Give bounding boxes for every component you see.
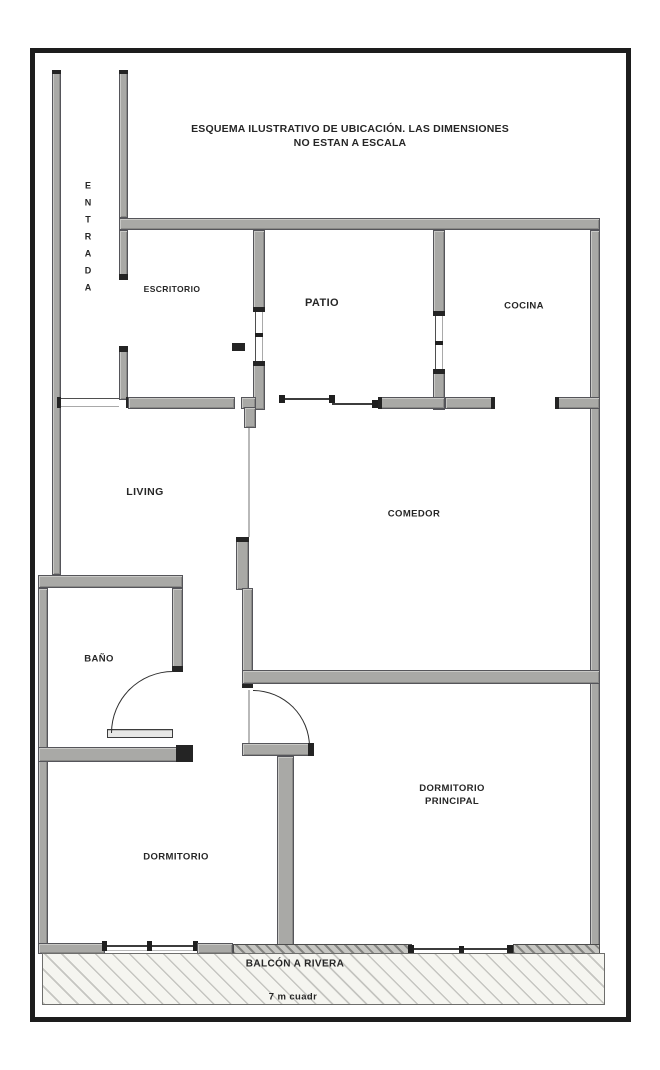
- sliding-door-stop: [279, 395, 285, 403]
- window-cap: [102, 941, 107, 951]
- wall-stub: [232, 343, 245, 351]
- opening-cap: [57, 397, 61, 408]
- wall-corner-block: [176, 745, 193, 762]
- door-leaf: [248, 690, 250, 743]
- wall-cap: [308, 743, 314, 756]
- room-label-entrada: ENTRADA: [83, 181, 93, 300]
- wall-cocina-bottom-right: [555, 397, 600, 409]
- sliding-door-stop: [329, 395, 335, 403]
- wall-cap: [52, 70, 61, 74]
- balcony-label: BALCÓN A RIVERA: [246, 959, 345, 970]
- room-label-comedor: COMEDOR: [388, 509, 440, 520]
- wall-cap: [119, 70, 128, 74]
- wall-cap: [378, 397, 382, 409]
- wall-cap: [172, 666, 183, 672]
- room-label-living: LIVING: [126, 486, 163, 498]
- plan-title: ESQUEMA ILUSTRATIVO DE UBICACIÓN. LAS DI…: [60, 122, 640, 150]
- wall-outer-right: [590, 230, 600, 950]
- opening-entrada-living: [61, 398, 119, 407]
- wall-escritorio-left-lower: [119, 346, 128, 400]
- room-label-cocina: COCINA: [504, 301, 544, 312]
- room-label-patio: PATIO: [305, 297, 339, 309]
- wall-living-comedor-upper: [236, 537, 249, 590]
- floor-plan: ESQUEMA ILUSTRATIVO DE UBICACIÓN. LAS DI…: [0, 0, 660, 1070]
- window-sill: [433, 311, 445, 316]
- wall-cocina-bottom-left: [445, 397, 495, 409]
- room-label-dormitorio-principal: DORMITORIO PRINCIPAL: [400, 782, 504, 808]
- wall-dormitorio-right: [277, 756, 294, 948]
- wall-escritorio-left-upper: [119, 230, 128, 280]
- window-sill: [253, 361, 265, 366]
- sliding-door-rail: [282, 398, 332, 400]
- room-boundary-line: [248, 428, 250, 537]
- wall-junction-stub: [244, 407, 256, 428]
- window-mullion: [255, 333, 263, 337]
- wall-comedor-bottom: [242, 670, 600, 684]
- wall-outer-left: [52, 70, 61, 575]
- wall-divider-escritorio-patio-upper: [253, 230, 265, 310]
- plan-title-line1: ESQUEMA ILUSTRATIVO DE UBICACIÓN. LAS DI…: [60, 122, 640, 136]
- window-sill: [253, 307, 265, 312]
- wall-top-main: [119, 218, 600, 230]
- balcony-area-label: 7 m cuadr: [269, 992, 317, 1003]
- wall-cap: [119, 346, 128, 352]
- wall-cap: [119, 274, 128, 280]
- wall-outer-left-lower: [38, 588, 48, 954]
- wall-cap: [236, 537, 249, 542]
- room-label-dormitorio: DORMITORIO: [143, 852, 209, 863]
- wall-divider-patio-cocina-upper: [433, 230, 445, 313]
- opening-cap: [491, 397, 495, 409]
- wall-bano-bottom: [38, 747, 190, 762]
- opening-cap: [555, 397, 559, 409]
- window-mullion: [435, 341, 443, 345]
- wall-entrada-right: [119, 70, 128, 218]
- window-sill: [433, 369, 445, 374]
- wall-patio-bottom-right: [378, 397, 445, 409]
- wall-hall-bottom: [242, 743, 314, 756]
- plan-title-line2: NO ESTAN A ESCALA: [60, 136, 640, 150]
- wall-escritorio-bottom: [128, 397, 235, 409]
- wall-bano-top: [38, 575, 183, 588]
- room-label-escritorio: ESCRITORIO: [144, 284, 201, 294]
- wall-bano-right: [172, 588, 183, 672]
- window-cap: [147, 941, 152, 951]
- room-label-bano: BAÑO: [84, 654, 114, 665]
- window: [255, 312, 263, 363]
- sliding-door-rail: [332, 403, 376, 405]
